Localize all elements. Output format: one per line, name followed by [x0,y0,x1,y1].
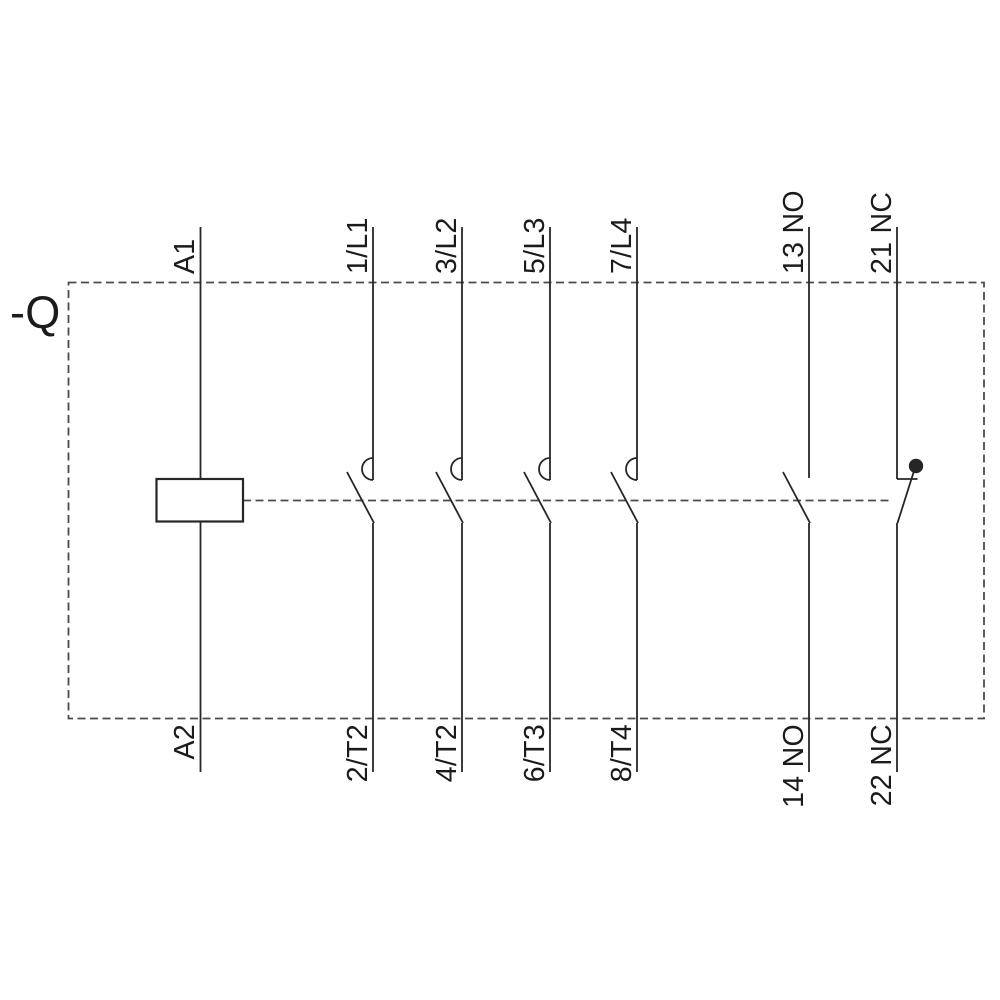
terminal-label-8t4: 8/T4 [606,724,638,782]
terminal-label-7l4: 7/L4 [606,217,638,274]
terminal-label-2t2: 2/T2 [342,724,374,782]
aux-nc-mirror-contact-dot [909,459,923,473]
terminal-label-6t3: 6/T3 [519,724,551,782]
terminal-label-a2: A2 [169,724,201,759]
device-designation-label: -Q [10,287,61,338]
terminal-label-21nc: 21 NC [866,192,898,274]
contactor-schematic: -Q A1 1/L1 3/L2 5/L3 7/L4 13 NO 21 NC A2… [0,0,1000,1000]
terminal-label-3l2: 3/L2 [431,217,463,274]
terminal-label-5l3: 5/L3 [519,217,551,274]
terminal-label-13no: 13 NO [778,190,810,274]
terminal-label-1l1: 1/L1 [342,217,374,274]
terminal-label-4t2: 4/T2 [431,724,463,782]
terminal-label-22nc: 22 NC [866,724,898,806]
terminal-label-14no: 14 NO [778,724,810,808]
terminal-label-a1: A1 [169,239,201,274]
